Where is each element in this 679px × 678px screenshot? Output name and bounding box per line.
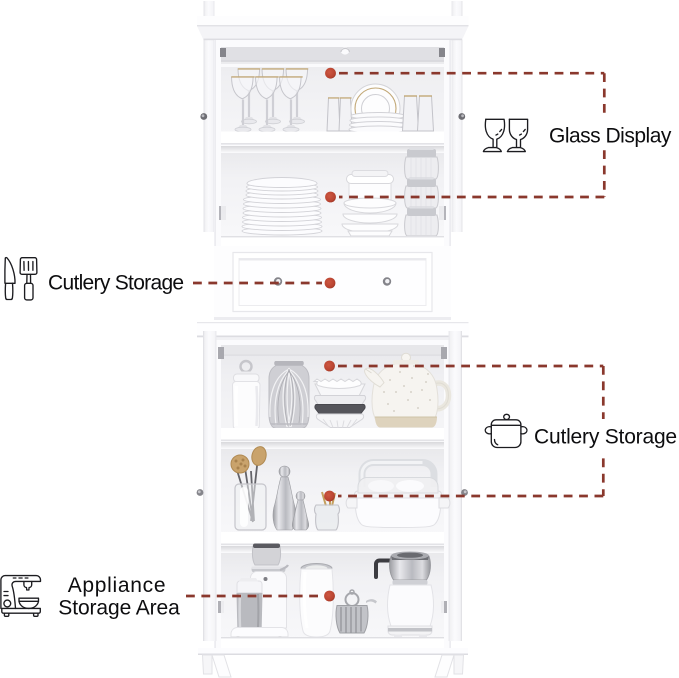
svg-text:Cutlery Storage: Cutlery Storage xyxy=(534,426,677,449)
svg-text:Glass Display: Glass Display xyxy=(549,125,672,148)
svg-text:Storage Area: Storage Area xyxy=(58,597,180,620)
svg-text:Cutlery Storage: Cutlery Storage xyxy=(48,272,183,295)
svg-text:Appliance: Appliance xyxy=(68,574,167,597)
